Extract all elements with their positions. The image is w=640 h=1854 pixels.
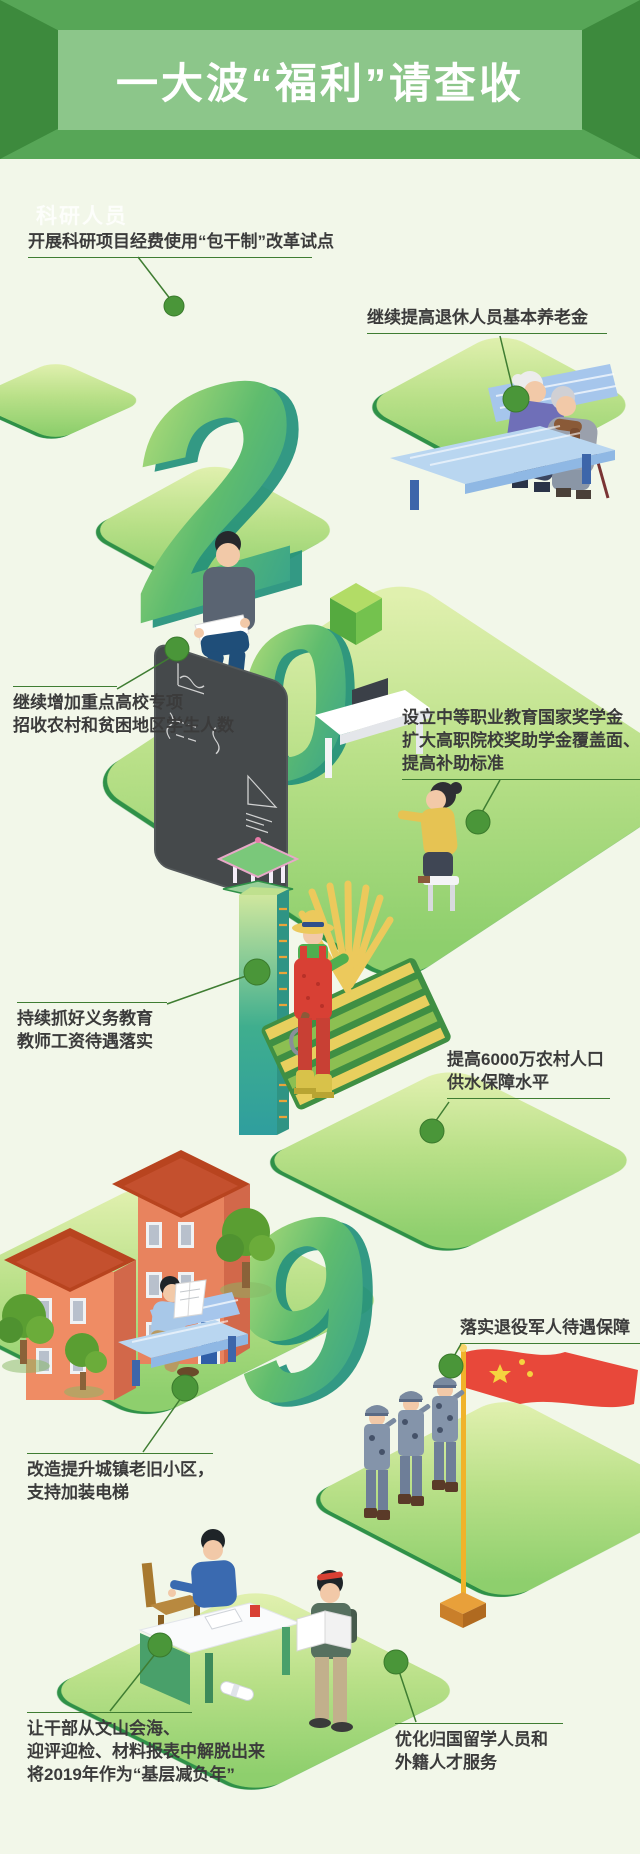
tree xyxy=(0,1294,54,1373)
callout-rural-water: 提高6000万农村人口 供水保障水平 xyxy=(447,1048,610,1103)
infographic-poster: 2 2 0 0 9 9 xyxy=(0,0,640,1854)
callout-veterans-benefit: 落实退役军人待遇保障 xyxy=(460,1316,640,1348)
rolled-document xyxy=(219,1680,255,1702)
banner-panel: 一大波“福利”请查收 xyxy=(58,30,582,130)
callout-line: 供水保障水平 xyxy=(447,1071,610,1094)
banner-wing-right xyxy=(582,0,640,159)
callout-teacher-pay: 持续抓好义务教育 教师工资待遇落实 xyxy=(17,998,167,1053)
leader-rule xyxy=(13,686,117,687)
callout-line: 优化归国留学人员和 xyxy=(395,1728,563,1751)
leader-rule xyxy=(447,1098,610,1099)
banner-wing-left xyxy=(0,0,58,159)
leader-rule xyxy=(460,1343,640,1344)
soldier xyxy=(432,1377,465,1492)
callout-line: 迎评迎检、材料报表中解脱出来 xyxy=(27,1740,265,1763)
leader-rule xyxy=(402,779,640,780)
callout-line: 继续增加重点高校专项 xyxy=(13,691,234,714)
green-cube xyxy=(330,583,382,645)
callout-pension-raise: 继续提高退休人员基本养老金 xyxy=(367,306,607,338)
reader xyxy=(297,1570,357,1732)
callout-line: 持续抓好义务教育 xyxy=(17,1007,167,1030)
callout-line: 扩大高职院校奖助学金覆盖面、 xyxy=(402,729,640,752)
callout-line: 招收农村和贫困地区学生人数 xyxy=(13,714,234,737)
leader-rule xyxy=(367,333,607,334)
illustration-farmer-field xyxy=(250,880,450,1130)
callout-line: 落实退役军人待遇保障 xyxy=(460,1316,640,1339)
cup xyxy=(250,1605,260,1617)
callout-line: 提高补助标准 xyxy=(402,752,640,775)
page-title: 一大波“福利”请查收 xyxy=(116,50,524,111)
callout-line: 外籍人才服务 xyxy=(395,1751,563,1774)
leader-rule xyxy=(395,1723,563,1724)
soldier xyxy=(398,1391,431,1506)
writer xyxy=(168,1529,238,1608)
callout-line: 支持加装电梯 xyxy=(27,1481,214,1504)
callout-line: 让干部从文山会海、 xyxy=(27,1717,265,1740)
leader-rule xyxy=(27,1453,213,1454)
soldier xyxy=(364,1405,397,1520)
callout-line: 提高6000万农村人口 xyxy=(447,1048,610,1071)
callout-line: 教师工资待遇落实 xyxy=(17,1030,167,1053)
illustration-bench-reader xyxy=(0,1280,270,1475)
header-banner: 一大波“福利”请查收 xyxy=(0,0,640,159)
leader-rule xyxy=(28,257,312,258)
callout-line: 继续提高退休人员基本养老金 xyxy=(367,306,607,329)
callout-line: 将2019年作为“基层减负年” xyxy=(27,1763,265,1786)
illustration-elderly-couple-on-bench xyxy=(370,330,630,520)
callout-university-enroll: 继续增加重点高校专项 招收农村和贫困地区学生人数 xyxy=(13,682,234,737)
illustration-standing-reader xyxy=(285,1555,395,1780)
callout-line: 开展科研项目经费使用“包干制”改革试点 xyxy=(28,230,334,253)
soldiers xyxy=(364,1377,465,1520)
leader-rule xyxy=(17,1002,167,1003)
leader-rule xyxy=(27,1712,192,1713)
callout-overseas-talent: 优化归国留学人员和 外籍人才服务 xyxy=(395,1719,563,1774)
callout-research-lump-sum: 开展科研项目经费使用“包干制”改革试点 xyxy=(28,230,334,262)
callout-line: 设立中等职业教育国家奖学金 xyxy=(402,706,640,729)
china-flag xyxy=(466,1349,638,1407)
callout-grassroots-burden: 让干部从文山会海、 迎评迎检、材料报表中解脱出来 将2019年作为“基层减负年” xyxy=(27,1708,265,1786)
watermark-label: 科研人员 xyxy=(36,200,128,230)
callout-old-community: 改造提升城镇老旧小区， 支持加装电梯 xyxy=(27,1449,214,1504)
callout-line: 改造提升城镇老旧小区， xyxy=(27,1458,214,1481)
tree-small xyxy=(64,1333,107,1398)
callout-vocational-grant: 设立中等职业教育国家奖学金 扩大高职院校奖助学金覆盖面、 提高补助标准 xyxy=(402,706,640,784)
